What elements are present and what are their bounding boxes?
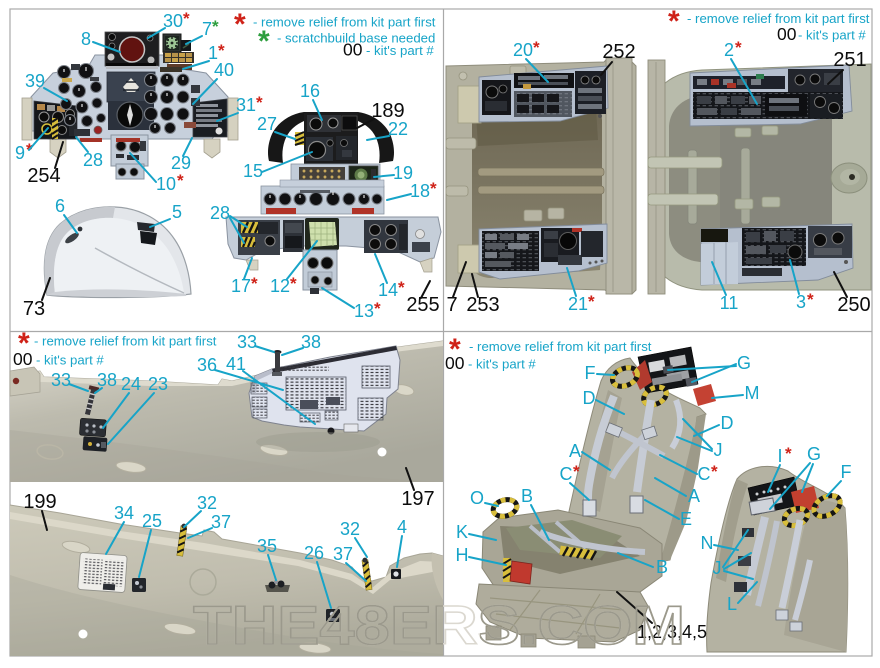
svg-text:*: * [374,299,381,318]
svg-text:*: * [785,444,792,463]
svg-text:- kit's part #: - kit's part # [366,43,434,58]
svg-text:252: 252 [602,41,635,63]
svg-text:37: 37 [211,512,231,532]
svg-text:M: M [745,383,760,403]
svg-text:20: 20 [513,40,533,60]
svg-text:*: * [588,292,595,311]
svg-text:25: 25 [142,511,162,531]
svg-text:A: A [688,486,700,506]
svg-text:22: 22 [388,119,408,139]
svg-text:O: O [470,488,484,508]
svg-text:38: 38 [301,332,321,352]
svg-text:*: * [533,38,540,57]
svg-text:21: 21 [568,294,588,314]
svg-text:*: * [290,274,297,293]
svg-text:N: N [701,533,714,553]
svg-text:C: C [698,464,711,484]
svg-text:18: 18 [410,181,430,201]
svg-text:2: 2 [724,40,734,60]
svg-text:5: 5 [172,202,182,222]
svg-text:253: 253 [466,294,499,316]
svg-text:K: K [456,522,468,542]
svg-text:11: 11 [720,293,739,313]
svg-text:23: 23 [148,374,168,394]
svg-text:33: 33 [237,332,257,352]
svg-text:*: * [256,93,263,112]
svg-text:197: 197 [401,488,434,510]
svg-text:255: 255 [406,294,439,316]
svg-text:24: 24 [121,374,141,394]
svg-text:00: 00 [13,349,33,369]
svg-text:*: * [711,462,718,481]
svg-text:*: * [177,171,184,190]
svg-text:D: D [583,388,596,408]
svg-text:G: G [807,444,821,464]
svg-text:13: 13 [354,301,374,321]
svg-text:29: 29 [171,153,191,173]
svg-text:28: 28 [210,203,230,223]
svg-text:I: I [777,446,782,466]
svg-text:7: 7 [446,294,457,316]
svg-text:8: 8 [81,29,91,49]
svg-text:- remove relief from kit part: - remove relief from kit part first [469,339,652,354]
svg-text:E: E [680,509,692,529]
svg-text:31: 31 [236,95,256,115]
svg-text:C: C [560,464,573,484]
svg-text:15: 15 [243,161,263,181]
svg-text:199: 199 [23,491,56,513]
svg-text:7: 7 [202,19,212,39]
svg-text:35: 35 [257,536,277,556]
svg-text:00: 00 [343,40,363,60]
svg-text:16: 16 [300,81,320,101]
svg-text:32: 32 [340,519,360,539]
svg-text:*: * [251,274,258,293]
svg-text:250: 250 [837,294,870,316]
svg-text:B: B [521,486,533,506]
svg-text:- remove relief from kit part: - remove relief from kit part first [34,334,217,349]
svg-text:251: 251 [833,49,866,71]
svg-text:*: * [668,5,680,38]
svg-text:B: B [656,557,668,577]
svg-text:F: F [585,363,596,383]
svg-text:38: 38 [97,370,117,390]
svg-text:*: * [398,278,405,297]
svg-text:F: F [841,462,852,482]
svg-text:36: 36 [197,355,217,375]
svg-text:26: 26 [304,543,324,563]
svg-text:33: 33 [51,370,71,390]
svg-text:27: 27 [257,114,277,134]
svg-text:- kit's part #: - kit's part # [36,353,104,368]
svg-text:34: 34 [114,503,134,523]
svg-text:A: A [569,441,581,461]
svg-text:J: J [714,440,723,460]
svg-text:G: G [737,353,751,373]
svg-text:4: 4 [397,517,407,537]
svg-text:- kit's part #: - kit's part # [798,28,866,43]
svg-text:37: 37 [333,544,353,564]
svg-text:73: 73 [23,298,45,320]
svg-text:H: H [456,545,469,565]
svg-text:THE48ERS.COM: THE48ERS.COM [193,594,685,656]
svg-text:*: * [430,179,437,198]
svg-text:*: * [234,8,246,41]
svg-text:32: 32 [197,493,217,513]
svg-text:00: 00 [445,353,465,373]
svg-text:L: L [727,594,737,614]
svg-text:17: 17 [231,276,251,296]
svg-text:*: * [735,38,742,57]
svg-text:D: D [721,413,734,433]
svg-text:*: * [258,25,270,58]
svg-text:*: * [212,17,219,36]
svg-text:*: * [807,290,814,309]
svg-text:39: 39 [25,71,45,91]
svg-text:- kit's part #: - kit's part # [468,357,536,372]
svg-text:J: J [713,558,722,578]
svg-text:3: 3 [796,292,806,312]
svg-text:28: 28 [83,150,103,170]
svg-text:*: * [218,41,225,60]
svg-text:*: * [183,9,190,28]
svg-text:6: 6 [55,196,65,216]
svg-text:40: 40 [214,60,234,80]
svg-text:19: 19 [393,163,413,183]
svg-text:10: 10 [156,174,176,194]
svg-text:- remove relief from kit part: - remove relief from kit part first [253,15,436,30]
svg-text:*: * [573,462,580,481]
svg-text:00: 00 [777,24,797,44]
svg-text:9: 9 [15,143,25,163]
